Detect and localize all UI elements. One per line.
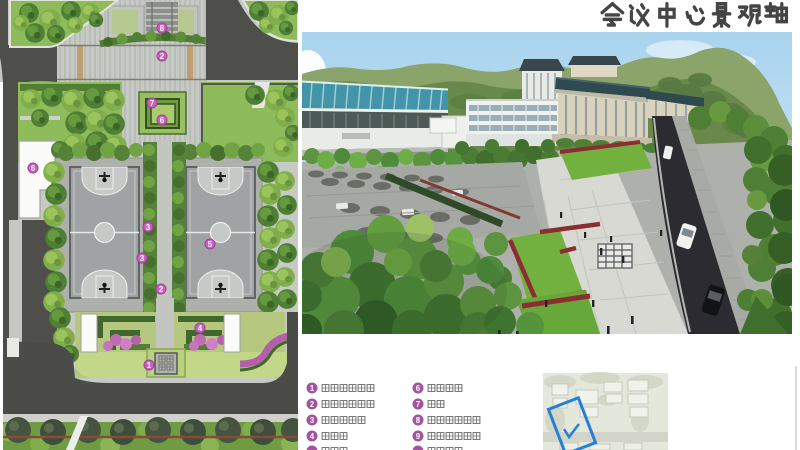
svg-text:4: 4	[198, 324, 203, 333]
svg-text:9: 9	[416, 432, 421, 441]
svg-text:7: 7	[416, 400, 421, 409]
svg-text:3: 3	[310, 416, 315, 425]
svg-text:1: 1	[310, 384, 315, 393]
svg-text:2: 2	[310, 400, 315, 409]
svg-text:6: 6	[31, 164, 36, 173]
svg-text:3: 3	[146, 223, 151, 232]
svg-text:1: 1	[147, 361, 152, 370]
svg-text:2: 2	[160, 52, 165, 61]
svg-text:6: 6	[416, 384, 421, 393]
svg-text:7: 7	[150, 99, 155, 108]
svg-text:3: 3	[140, 254, 145, 263]
svg-text:4: 4	[310, 432, 315, 441]
svg-text:5: 5	[208, 240, 213, 249]
svg-text:8: 8	[416, 416, 421, 425]
svg-text:2: 2	[159, 285, 164, 294]
svg-text:6: 6	[160, 116, 165, 125]
svg-text:8: 8	[160, 24, 165, 33]
